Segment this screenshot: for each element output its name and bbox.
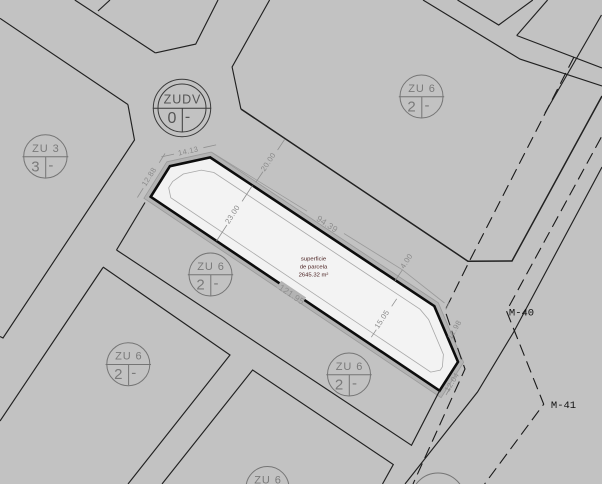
svg-text:ZUDV: ZUDV — [164, 92, 202, 106]
svg-text:-: - — [352, 375, 357, 392]
svg-text:-: - — [48, 157, 53, 174]
svg-text:-: - — [425, 97, 430, 114]
svg-text:ZU 6: ZU 6 — [254, 474, 281, 484]
svg-text:-: - — [214, 275, 219, 292]
svg-text:-: - — [131, 365, 136, 382]
svg-text:0: 0 — [168, 110, 177, 127]
svg-text:M-40: M-40 — [509, 308, 534, 320]
svg-text:2: 2 — [335, 377, 343, 394]
svg-text:ZU 6: ZU 6 — [197, 261, 224, 273]
svg-text:de parcela: de parcela — [300, 265, 328, 271]
svg-text:M-41: M-41 — [551, 400, 576, 412]
svg-text:2: 2 — [114, 366, 122, 383]
svg-text:3: 3 — [31, 158, 39, 175]
svg-text:superficie: superficie — [301, 257, 327, 263]
svg-text:2: 2 — [407, 99, 415, 116]
svg-text:-: - — [185, 109, 190, 126]
svg-text:ZU 6: ZU 6 — [115, 351, 142, 363]
svg-text:2: 2 — [196, 277, 204, 294]
svg-text:ZU 6: ZU 6 — [336, 361, 363, 373]
svg-text:ZU 6: ZU 6 — [408, 83, 435, 95]
svg-text:2645.32 m²: 2645.32 m² — [299, 273, 329, 279]
svg-text:ZU 3: ZU 3 — [32, 143, 59, 155]
